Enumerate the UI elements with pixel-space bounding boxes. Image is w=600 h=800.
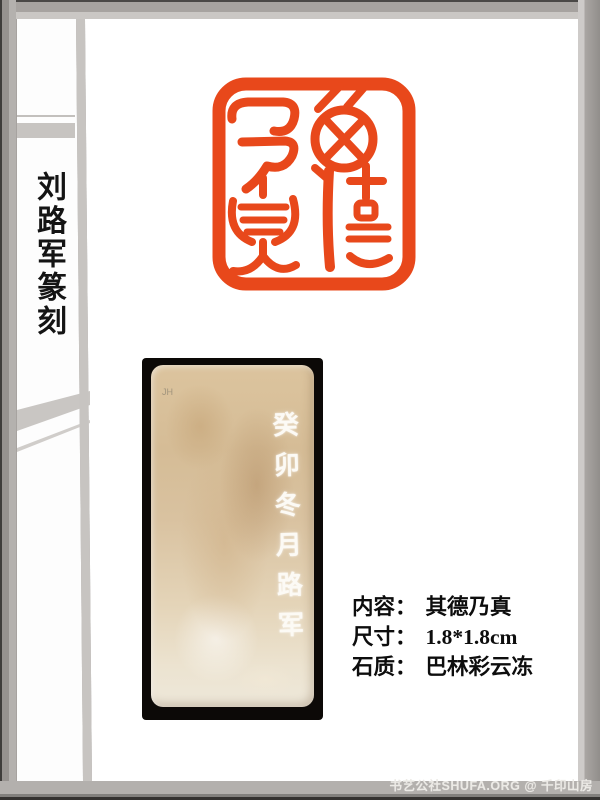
info-label: 尺寸： <box>352 625 417 649</box>
info-value: 其德乃真 <box>426 595 512 619</box>
spine-artist-title: 刘路军篆刻 <box>28 171 70 339</box>
seal-stone: JH 癸卯冬月路军 <box>151 365 314 707</box>
info-row-stone-type: 石质：巴林彩云冻 <box>352 652 533 682</box>
stone-side-inscription: 癸卯冬月路军 <box>265 411 308 652</box>
info-row-content: 内容：其德乃真 <box>352 592 533 622</box>
info-label: 内容： <box>352 595 417 619</box>
artwork-info: 内容：其德乃真 尺寸：1.8*1.8cm 石质：巴林彩云冻 <box>352 592 533 682</box>
frame-right <box>578 0 600 800</box>
seal-impression-image <box>208 74 420 296</box>
info-label: 石质： <box>352 655 417 679</box>
artwork-page: 刘路军篆刻 <box>0 0 600 800</box>
info-row-size: 尺寸：1.8*1.8cm <box>352 622 533 652</box>
site-watermark: 书艺公社SHUFA.ORG @ 千印山房 <box>390 778 593 795</box>
frame-left <box>0 0 16 800</box>
info-value: 巴林彩云冻 <box>426 655 534 679</box>
photo-corner-mark: JH <box>162 387 173 397</box>
info-value: 1.8*1.8cm <box>426 625 518 649</box>
seal-stone-photo: JH 癸卯冬月路军 <box>142 358 323 720</box>
frame-top <box>0 0 600 19</box>
